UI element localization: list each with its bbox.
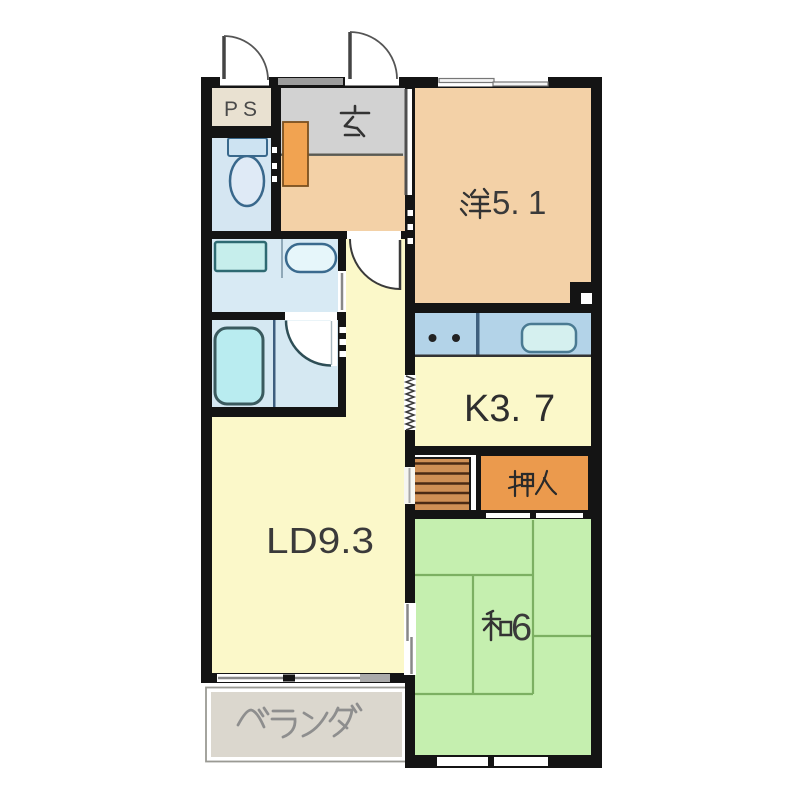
svg-text:1: 1 — [528, 184, 546, 221]
svg-text:6: 6 — [511, 607, 532, 649]
svg-text:PS: PS — [224, 98, 262, 121]
svg-text:K3.: K3. — [464, 388, 521, 430]
svg-text:LD9.3: LD9.3 — [266, 520, 374, 561]
svg-text:5.: 5. — [492, 184, 520, 221]
svg-text:7: 7 — [534, 388, 555, 430]
